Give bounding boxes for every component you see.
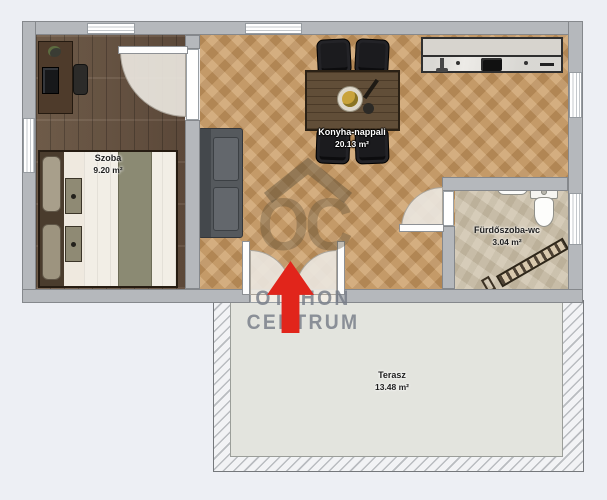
room-label-szoba: Szoba 9.20 m² — [93, 153, 122, 176]
wall-right — [568, 21, 583, 300]
dining-bowl — [363, 103, 374, 114]
bedroom-door-leaf — [118, 46, 188, 54]
desk-laptop — [42, 67, 59, 94]
kitchen-faucet-icon — [436, 68, 448, 72]
floor-plan-canvas: OC OTTHON CENTRUM Szoba 9.20 m² Konyha-n… — [0, 0, 607, 500]
room-area: 20.13 m² — [318, 139, 386, 150]
sofa-backrest — [199, 129, 211, 237]
bed-pillow — [42, 156, 61, 212]
window-top-living — [245, 23, 302, 34]
room-label-konyha-nappali: Konyha-nappali 20.13 m² — [318, 127, 386, 150]
wall-bathroom-left — [442, 226, 455, 289]
window-top-bedroom — [87, 23, 135, 34]
kitchen-knob — [456, 61, 460, 65]
bed-cushion-knob — [71, 242, 76, 247]
sofa — [198, 128, 243, 238]
wall-bathroom-top — [442, 177, 568, 191]
desk-plant — [48, 46, 61, 57]
bed-cushion-knob — [71, 194, 76, 199]
room-label-furdoszoba: Fürdőszoba-wc 3.04 m² — [474, 225, 540, 248]
room-name: Szoba — [93, 153, 122, 165]
toilet-bowl — [534, 197, 554, 227]
room-name: Fürdőszoba-wc — [474, 225, 540, 237]
kitchen-upper-cabinet — [421, 37, 563, 57]
entrance-door-left-leaf — [242, 241, 250, 295]
sofa-cushion — [213, 187, 239, 231]
wall-bottom-left — [22, 289, 250, 303]
room-name: Konyha-nappali — [318, 127, 386, 139]
bedroom-doorway — [186, 49, 199, 120]
room-name: Terasz — [375, 370, 409, 382]
wall-bottom-right — [337, 289, 583, 303]
kitchen-handle — [540, 63, 554, 66]
room-label-terasz: Terasz 13.48 m² — [375, 370, 409, 393]
sofa-cushion — [213, 137, 239, 181]
kitchen-knob — [524, 61, 528, 65]
kitchen-cooktop-icon — [481, 58, 502, 71]
window-left-bedroom — [23, 118, 35, 173]
room-area: 13.48 m² — [375, 382, 409, 393]
window-right-bathroom — [569, 193, 582, 245]
bed-runner-blanket — [118, 152, 152, 286]
room-area: 9.20 m² — [93, 165, 122, 176]
wall-divider-bedroom-living — [185, 120, 200, 289]
desk-chair — [73, 64, 88, 95]
bathroom-doorway — [443, 191, 454, 226]
bed-pillow — [42, 224, 61, 280]
dining-food — [342, 91, 358, 107]
bathroom-door-leaf — [399, 224, 444, 232]
window-right-living — [569, 72, 582, 118]
room-area: 3.04 m² — [474, 237, 540, 248]
entrance-door-right-leaf — [337, 241, 345, 295]
